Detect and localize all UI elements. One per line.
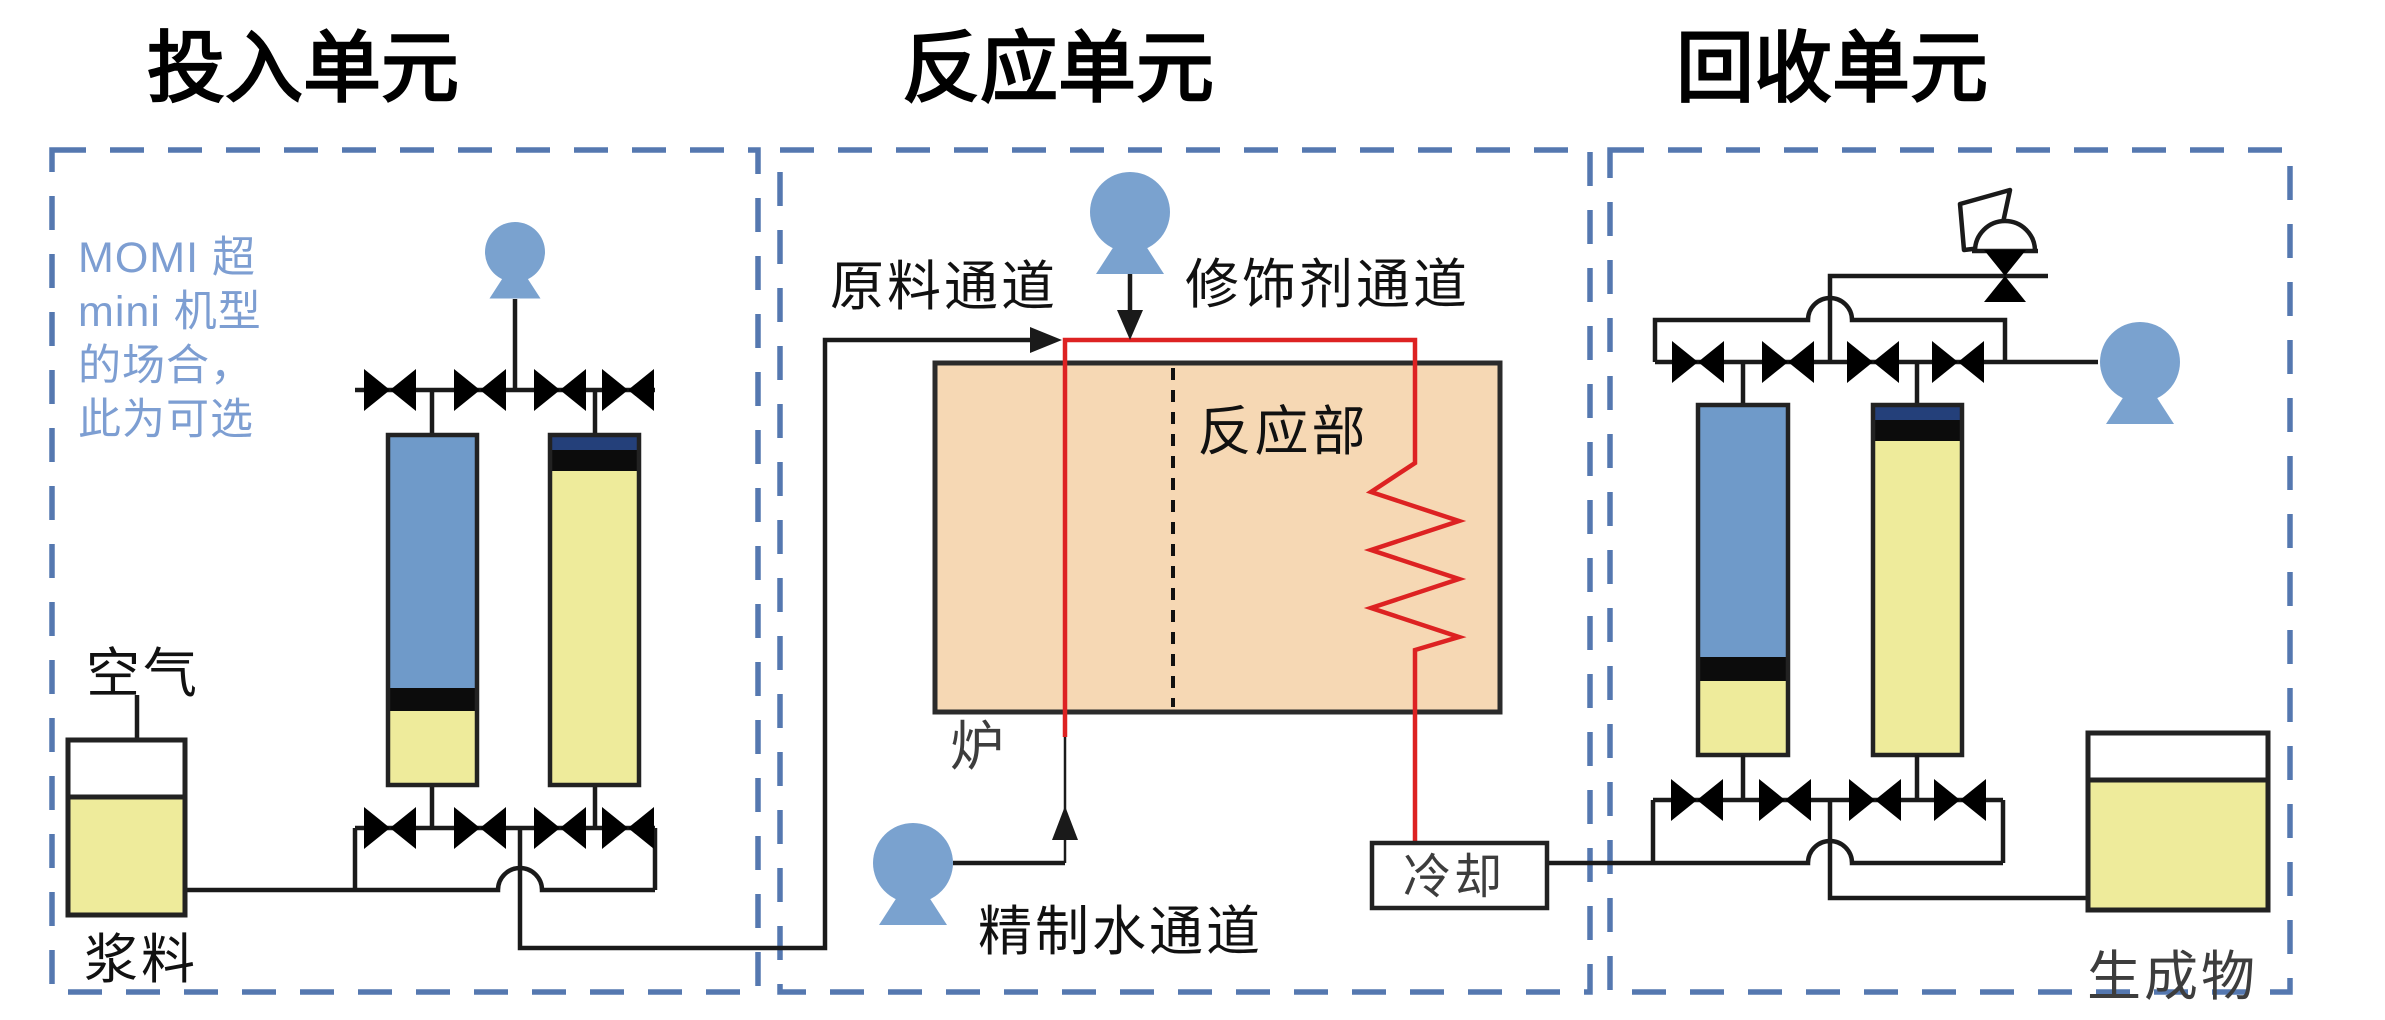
product-outlet-pipe	[1830, 800, 2088, 898]
recovery-top-valve-1-icon	[1672, 341, 1724, 383]
input-column-left	[388, 435, 477, 785]
air-label: 空气	[86, 644, 200, 704]
product-tank	[2088, 733, 2268, 910]
input-bottom-valve-3-icon	[534, 807, 586, 849]
input-top-valve-4-icon	[602, 369, 654, 411]
recovery-bottom-valve-4-icon	[1934, 779, 1986, 821]
purified-water-arrowhead-icon	[1052, 806, 1078, 840]
momi-note-line1: MOMI 超	[78, 234, 256, 282]
momi-note: MOMI 超 mini 机型 的场合， 此为可选	[78, 234, 262, 444]
reaction-unit-title: 反应单元	[902, 24, 1214, 112]
modifier-pump-icon	[1090, 172, 1170, 274]
recovery-unit: 生成物	[1653, 190, 2268, 1007]
recovery-unit-title: 回收单元	[1676, 24, 1988, 112]
feed-line-arrowhead-icon	[1030, 327, 1062, 353]
recovery-pump-icon	[2100, 322, 2180, 424]
input-slurry-suction-pipe-with-bridge	[150, 868, 655, 890]
slurry-tank	[68, 740, 185, 915]
slurry-label: 浆料	[84, 930, 198, 990]
recovery-top-valve-2-icon	[1762, 341, 1814, 383]
recovery-top-valve-3-icon	[1847, 341, 1899, 383]
relief-valve-icon	[1960, 190, 2038, 302]
recovery-bottom-valve-2-icon	[1759, 779, 1811, 821]
feed-channel-label: 原料通道	[830, 257, 1058, 317]
recovery-column-right	[1873, 405, 1962, 755]
cooling-label: 冷却	[1403, 851, 1505, 904]
cooling-box: 冷却	[1372, 843, 1547, 908]
input-pump-icon	[485, 222, 545, 299]
reaction-unit: 反应部 炉 原料通道 修饰剂通道 精制水通道 冷却	[830, 172, 1653, 962]
recovery-column-left	[1698, 405, 1788, 755]
recovery-bottom-valve-3-icon	[1849, 779, 1901, 821]
momi-note-line3: 的场合，	[78, 342, 254, 390]
purified-water-pump-icon	[873, 823, 953, 925]
input-unit-title: 投入单元	[147, 24, 459, 112]
input-column-right	[550, 435, 639, 785]
input-top-valve-1-icon	[364, 369, 416, 411]
momi-note-line2: mini 机型	[78, 288, 262, 336]
process-flow-diagram: 投入单元 反应单元 回收单元 MOMI 超 mini 机型 的场合， 此为可选	[0, 0, 2385, 1015]
input-bottom-valve-2-icon	[454, 807, 506, 849]
modifier-channel-label: 修饰剂通道	[1185, 255, 1470, 315]
reaction-section-label: 反应部	[1198, 402, 1369, 462]
recovery-top-valve-4-icon	[1932, 341, 1984, 383]
purified-water-channel-label: 精制水通道	[978, 902, 1263, 962]
furnace-label: 炉	[950, 717, 1007, 777]
input-top-valve-3-icon	[534, 369, 586, 411]
input-bottom-valve-4-icon	[602, 807, 654, 849]
recovery-bottom-valve-1-icon	[1671, 779, 1723, 821]
momi-note-line4: 此为可选	[78, 396, 254, 444]
modifier-arrowhead-icon	[1117, 310, 1143, 340]
input-top-valve-2-icon	[454, 369, 506, 411]
product-label: 生成物	[2087, 947, 2258, 1007]
input-bottom-valve-1-icon	[364, 807, 416, 849]
